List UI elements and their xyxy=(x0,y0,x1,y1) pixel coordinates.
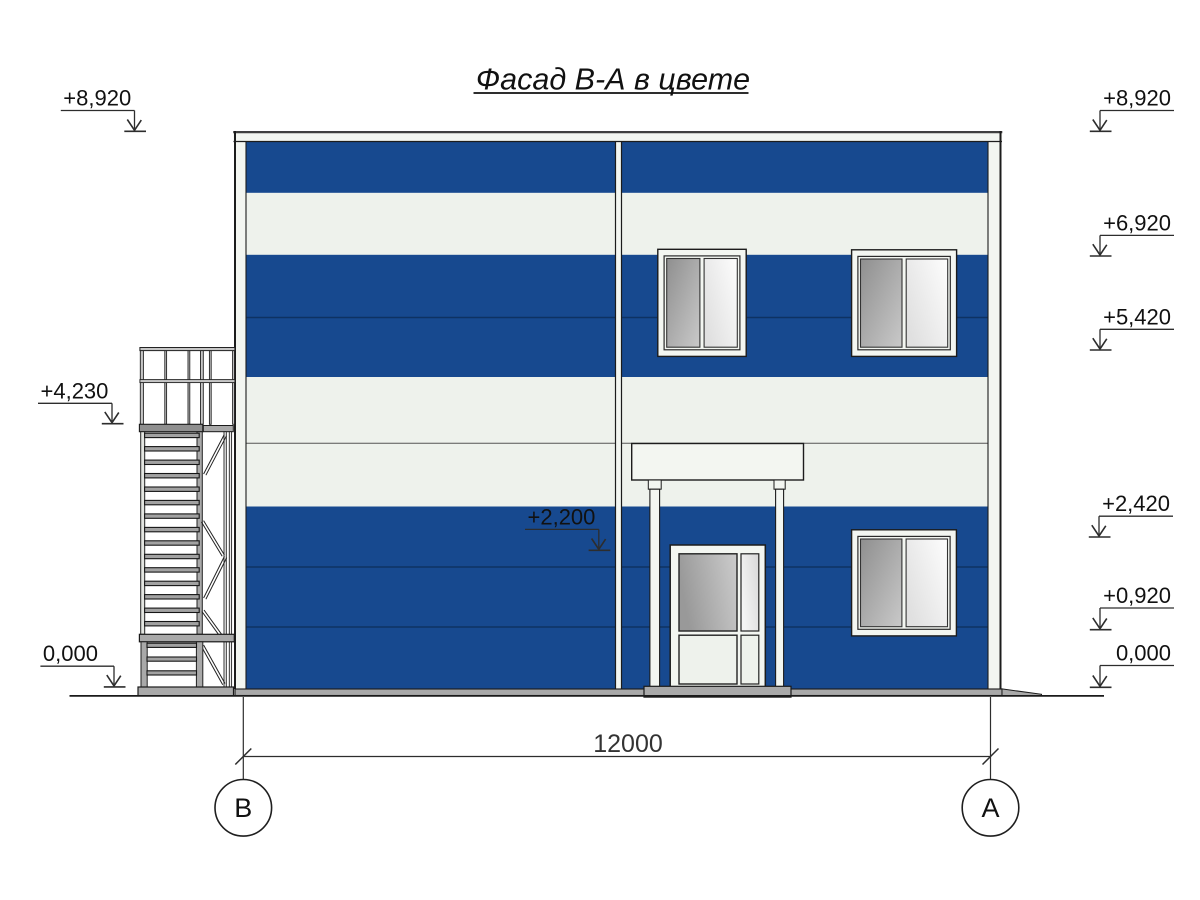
svg-text:12000: 12000 xyxy=(593,730,663,758)
svg-text:Фасад В-А в цвете: Фасад В-А в цвете xyxy=(476,63,750,97)
svg-text:+6,920: +6,920 xyxy=(1103,210,1171,235)
svg-text:+2,200: +2,200 xyxy=(528,504,596,529)
svg-text:+4,230: +4,230 xyxy=(41,378,109,403)
svg-text:+2,420: +2,420 xyxy=(1102,491,1170,516)
svg-text:А: А xyxy=(981,793,999,823)
svg-text:+0,920: +0,920 xyxy=(1103,583,1171,608)
svg-text:+8,920: +8,920 xyxy=(1103,86,1171,111)
svg-text:0,000: 0,000 xyxy=(43,641,98,666)
svg-text:+5,420: +5,420 xyxy=(1103,304,1171,329)
svg-text:В: В xyxy=(234,793,252,823)
svg-text:+8,920: +8,920 xyxy=(63,86,131,111)
svg-text:0,000: 0,000 xyxy=(1116,641,1171,666)
